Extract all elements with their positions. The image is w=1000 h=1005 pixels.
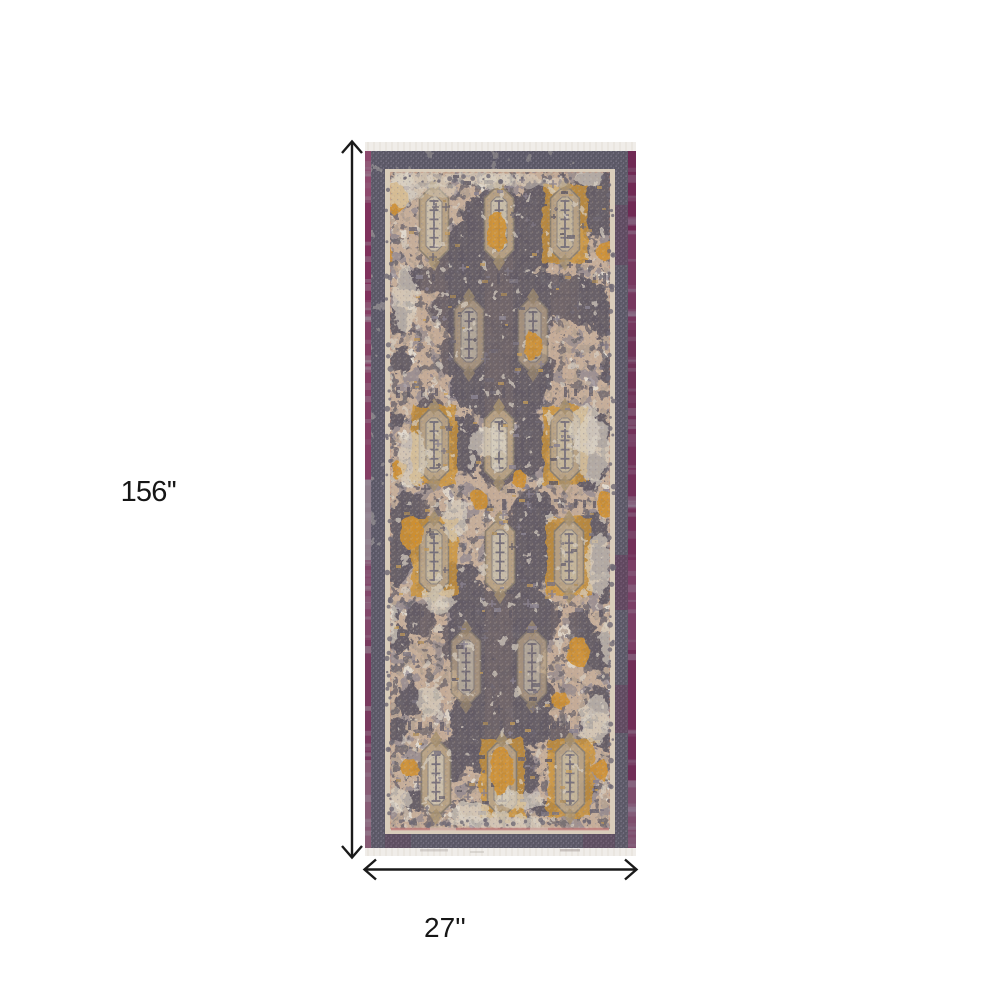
svg-text:27'': 27'' xyxy=(424,912,466,943)
svg-text:156'': 156'' xyxy=(121,476,177,508)
